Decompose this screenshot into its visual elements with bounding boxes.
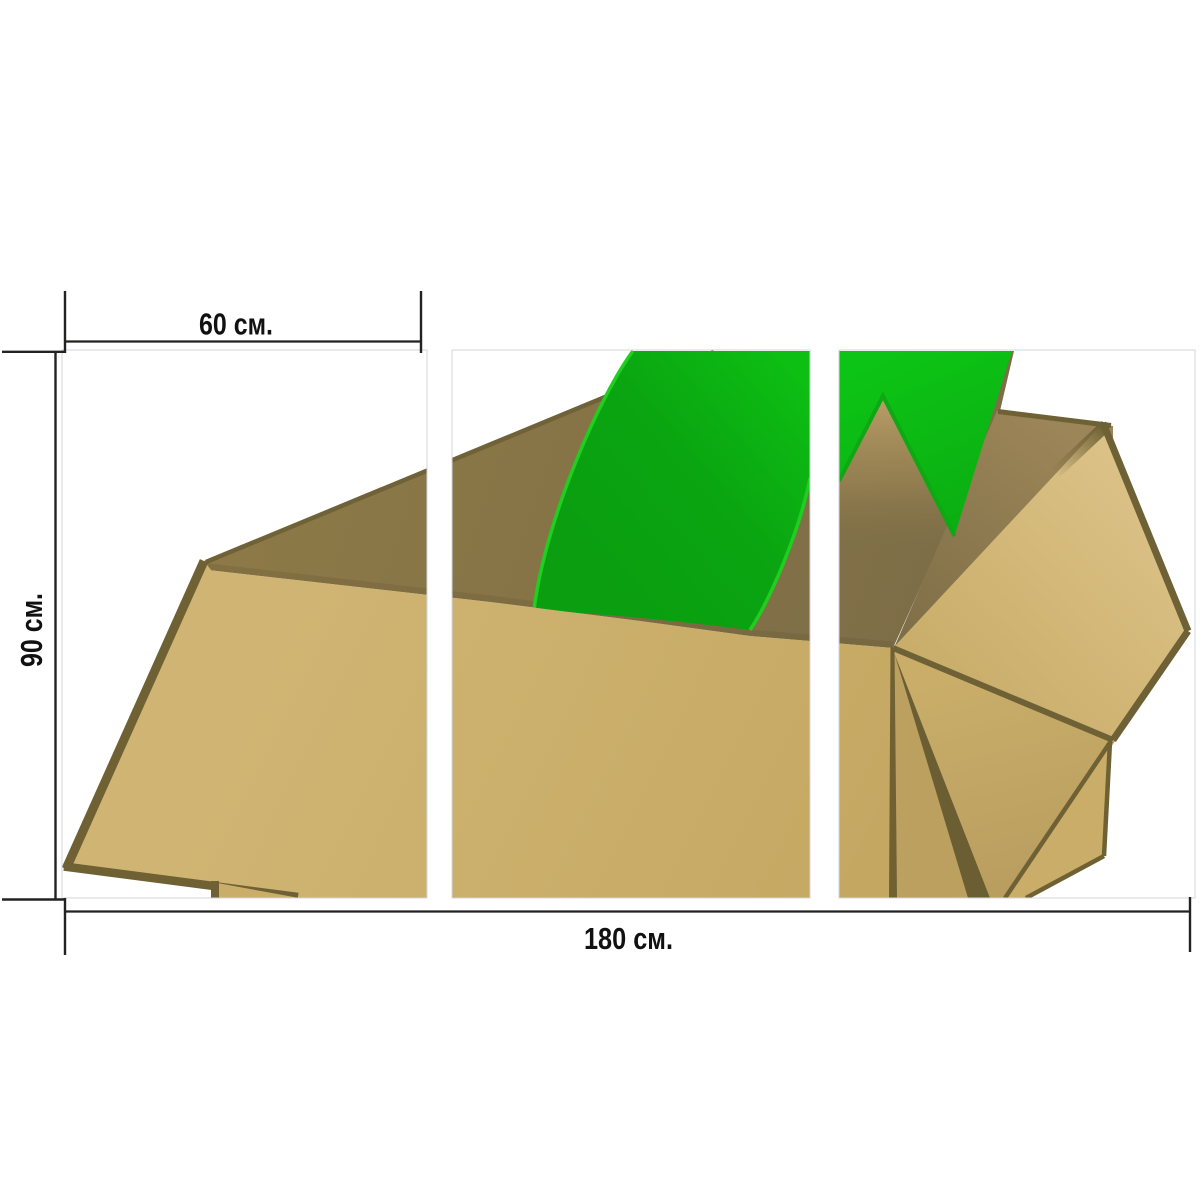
svg-text:60 см.: 60 см. <box>199 307 273 342</box>
svg-text:90 см.: 90 см. <box>14 593 49 667</box>
svg-text:180 см.: 180 см. <box>584 921 673 956</box>
